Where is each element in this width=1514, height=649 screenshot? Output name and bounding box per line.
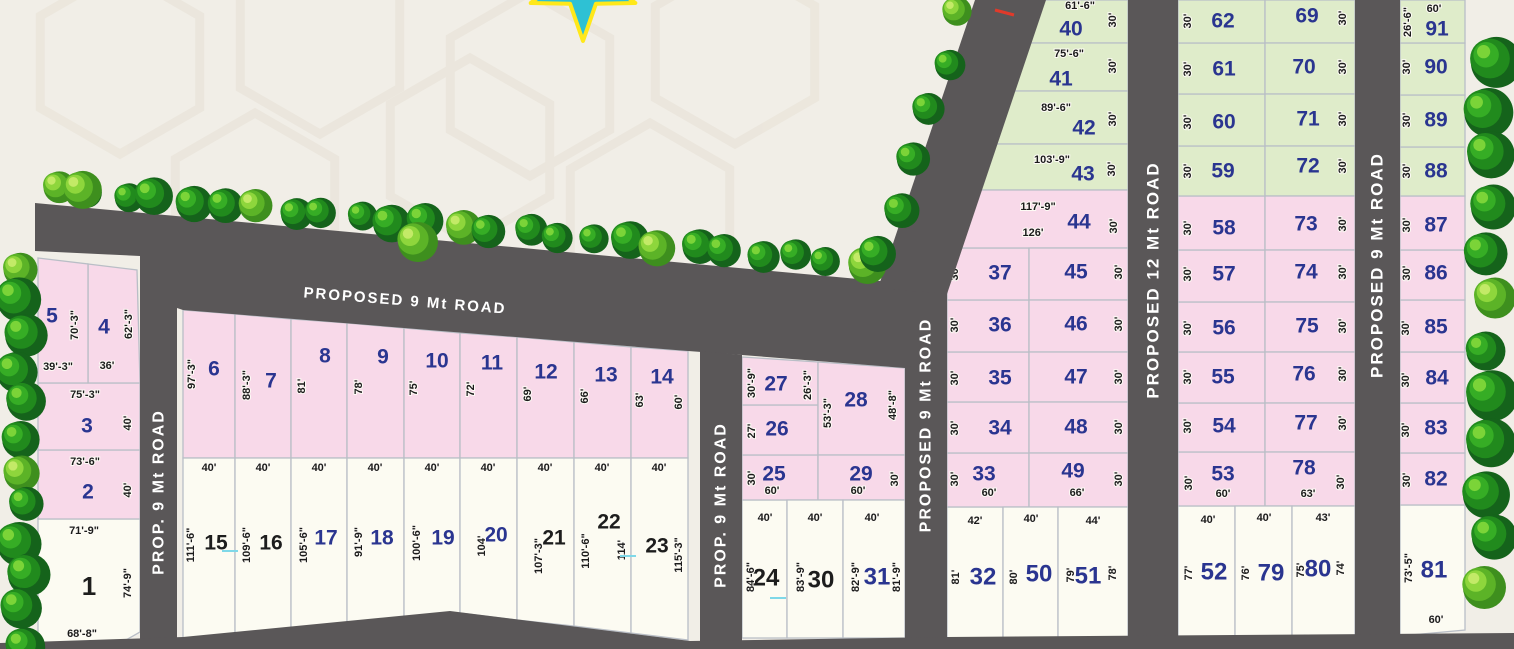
plot-25-number: 25 bbox=[762, 463, 786, 486]
plot-43-dimension: 30' bbox=[1106, 161, 1118, 176]
plot-76-number: 76 bbox=[1292, 363, 1315, 386]
plot-88-dimension: 30' bbox=[1401, 163, 1413, 178]
plot-41-dimension: 30' bbox=[1107, 58, 1119, 73]
plot-29-dimension: 60' bbox=[851, 485, 866, 497]
plot-73-dimension: 30' bbox=[1337, 216, 1349, 231]
plot-56-number: 56 bbox=[1212, 317, 1235, 340]
plot-89-dimension: 30' bbox=[1401, 112, 1413, 127]
plot-41-dimension: 75'-6" bbox=[1054, 48, 1084, 60]
plot-7-number: 7 bbox=[265, 370, 277, 393]
plot-85-number: 85 bbox=[1424, 316, 1448, 339]
plot-5: 570'-3"39'-3" bbox=[38, 258, 88, 383]
plot-27-dimension: 26'-3" bbox=[802, 370, 814, 400]
plot-70-number: 70 bbox=[1292, 56, 1315, 79]
plot-4: 462'-3"36' bbox=[88, 264, 140, 383]
plot-1: 171'-9"74'-9"68'-8" bbox=[38, 519, 140, 648]
plot-79-dimension: 40' bbox=[1257, 512, 1272, 524]
road-label-9mt-right: PROPOSED 9 Mt ROAD bbox=[1368, 152, 1387, 378]
plot-91-dimension: 60' bbox=[1427, 3, 1442, 15]
plot-49: 4966'30' bbox=[1029, 453, 1128, 507]
plot-49-dimension: 66' bbox=[1070, 487, 1085, 499]
plot-32-dimension: 42' bbox=[968, 515, 983, 527]
plot-25-dimension: 30' bbox=[746, 470, 758, 485]
plot-84: 8430' bbox=[1400, 352, 1465, 403]
plot-3-number: 3 bbox=[81, 415, 93, 438]
plot-52-dimension: 77' bbox=[1183, 565, 1195, 580]
plot-11: 1172' bbox=[460, 333, 517, 458]
plot-3-dimension: 75'-3" bbox=[70, 389, 100, 401]
plot-28-number: 28 bbox=[844, 389, 868, 412]
plot-53-dimension: 30' bbox=[1183, 475, 1195, 490]
plot-91: 9160'26'-6" bbox=[1400, 0, 1465, 43]
plot-79-number: 79 bbox=[1258, 560, 1285, 587]
plot-24: 2440'84'-6" bbox=[742, 500, 787, 638]
plot-44-dimension: 30' bbox=[1108, 218, 1120, 233]
plot-78-dimension: 30' bbox=[1335, 474, 1347, 489]
plot-74-dimension: 30' bbox=[1337, 264, 1349, 279]
plot-43-number: 43 bbox=[1071, 163, 1094, 186]
plot-36-number: 36 bbox=[988, 314, 1011, 337]
plot-31-dimension: 40' bbox=[865, 512, 880, 524]
plot-87-dimension: 30' bbox=[1401, 217, 1413, 232]
plot-91-dimension: 26'-6" bbox=[1402, 7, 1414, 37]
plot-50-dimension: 80' bbox=[1008, 569, 1020, 584]
plot-48-number: 48 bbox=[1064, 416, 1088, 439]
plot-45-dimension: 30' bbox=[1113, 264, 1125, 279]
plot-75-dimension: 30' bbox=[1337, 318, 1349, 333]
plot-34-number: 34 bbox=[988, 417, 1012, 440]
plot-35-number: 35 bbox=[988, 367, 1012, 390]
plot-15: 1540'111'-6" bbox=[183, 458, 235, 638]
plot-12-dimension: 69' bbox=[522, 386, 534, 401]
plot-47-dimension: 30' bbox=[1113, 369, 1125, 384]
plot-2-dimension: 40' bbox=[122, 482, 134, 497]
plot-19: 1940'100'-6" bbox=[404, 458, 460, 617]
plot-50: 5040'80' bbox=[1003, 507, 1058, 638]
plot-76-dimension: 30' bbox=[1337, 366, 1349, 381]
plot-83: 8330' bbox=[1400, 403, 1465, 453]
plot-6-number: 6 bbox=[208, 358, 220, 381]
plot-10-number: 10 bbox=[425, 350, 448, 373]
plot-22-number: 22 bbox=[597, 511, 620, 534]
plot-19-dimension: 40' bbox=[425, 462, 440, 474]
plot-5-dimension: 39'-3" bbox=[43, 361, 73, 373]
plot-14-dimension: 63' bbox=[634, 392, 646, 407]
plot-23-dimension: 114' bbox=[616, 539, 628, 560]
plot-50-number: 50 bbox=[1026, 561, 1053, 588]
plot-84-number: 84 bbox=[1425, 367, 1449, 390]
plot-90-number: 90 bbox=[1424, 56, 1447, 79]
plot-4-dimension: 36' bbox=[100, 360, 115, 372]
plot-41-number: 41 bbox=[1049, 68, 1073, 91]
plot-48: 4830' bbox=[1029, 402, 1128, 453]
plot-82-dimension: 30' bbox=[1401, 472, 1413, 487]
plot-91-number: 91 bbox=[1425, 18, 1449, 41]
plot-83-number: 83 bbox=[1424, 417, 1447, 440]
plot-82: 8230' bbox=[1400, 453, 1465, 505]
plot-58-number: 58 bbox=[1212, 217, 1236, 240]
plot-62-dimension: 30' bbox=[1182, 13, 1194, 28]
plot-34: 3430' bbox=[947, 402, 1029, 453]
plot-72: 7230' bbox=[1265, 146, 1355, 196]
plot-88: 8830' bbox=[1400, 147, 1465, 196]
plot-19-dimension: 100'-6" bbox=[411, 525, 423, 561]
plot-7: 788'-3" bbox=[235, 314, 291, 458]
plot-59-number: 59 bbox=[1211, 160, 1234, 183]
plot-36-dimension: 30' bbox=[949, 317, 961, 332]
plot-49-number: 49 bbox=[1061, 460, 1084, 483]
plot-13: 1366' bbox=[574, 342, 631, 458]
plot-47-number: 47 bbox=[1064, 366, 1087, 389]
plot-44: 44117'-9"126'30' bbox=[958, 190, 1128, 248]
plot-30-number: 30 bbox=[808, 567, 835, 594]
plot-34-dimension: 30' bbox=[949, 420, 961, 435]
plot-90: 9030' bbox=[1400, 43, 1465, 95]
plot-74: 7430' bbox=[1265, 250, 1355, 302]
plot-21-number: 21 bbox=[542, 527, 566, 550]
plot-37-number: 37 bbox=[988, 262, 1011, 285]
plot-45-number: 45 bbox=[1064, 261, 1088, 284]
plot-46-number: 46 bbox=[1064, 313, 1087, 336]
plot-51-number: 51 bbox=[1075, 563, 1102, 590]
plot-15-dimension: 111'-6" bbox=[185, 528, 197, 563]
plot-25: 2530'60' bbox=[742, 455, 818, 500]
plot-79: 7940'76' bbox=[1235, 506, 1292, 638]
plot-30: 3040'83'-9" bbox=[787, 500, 843, 638]
plot-80-dimension: 75' bbox=[1295, 562, 1307, 577]
plot-14-dimension: 60' bbox=[673, 394, 685, 409]
plot-60-dimension: 30' bbox=[1182, 114, 1194, 129]
plot-89-number: 89 bbox=[1424, 109, 1447, 132]
plot-45: 4530' bbox=[1029, 248, 1128, 300]
road-label-prop9-left: PROP. 9 Mt ROAD bbox=[151, 409, 168, 575]
plot-42-number: 42 bbox=[1072, 117, 1095, 140]
plot-80: 8043'75'74' bbox=[1292, 506, 1355, 638]
plot-78-number: 78 bbox=[1292, 457, 1316, 480]
plot-17-dimension: 105'-6" bbox=[298, 527, 310, 563]
plot-17: 1740'105'-6" bbox=[291, 458, 347, 628]
plot-18-dimension: 91'-9" bbox=[353, 527, 365, 557]
plot-27-number: 27 bbox=[764, 373, 787, 396]
road-label-prop9-mid: PROP. 9 Mt ROAD bbox=[713, 422, 730, 588]
plot-73-number: 73 bbox=[1294, 213, 1317, 236]
plot-6: 697'-3" bbox=[183, 310, 235, 458]
plot-53-dimension: 60' bbox=[1216, 488, 1231, 500]
plot-13-dimension: 66' bbox=[579, 388, 591, 403]
plot-27-dimension: 30'-9" bbox=[746, 368, 758, 398]
plot-29-dimension: 30' bbox=[889, 471, 901, 486]
plot-layout-map: 171'-9"74'-9"68'-8"273'-6"40'375'-3"40'4… bbox=[0, 0, 1514, 649]
plot-21-dimension: 40' bbox=[538, 462, 553, 474]
plot-54-dimension: 30' bbox=[1182, 418, 1194, 433]
plot-54: 5430' bbox=[1178, 403, 1265, 452]
plot-52: 5240'77' bbox=[1178, 506, 1235, 638]
plot-73: 7330' bbox=[1265, 196, 1355, 250]
plot-21: 2140'107'-3" bbox=[517, 458, 574, 626]
plot-29: 2960'30' bbox=[818, 455, 905, 500]
plot-57-dimension: 30' bbox=[1182, 266, 1194, 281]
plot-28-dimension: 48'-8" bbox=[887, 390, 899, 420]
plot-20-dimension: 104' bbox=[476, 535, 488, 556]
plot-17-dimension: 40' bbox=[312, 462, 327, 474]
plot-57-number: 57 bbox=[1212, 263, 1235, 286]
plot-32-number: 32 bbox=[970, 564, 997, 591]
plot-53-number: 53 bbox=[1211, 463, 1234, 486]
plot-3-dimension: 40' bbox=[122, 415, 134, 430]
plot-25-dimension: 60' bbox=[765, 485, 780, 497]
plot-2: 273'-6"40' bbox=[38, 450, 140, 519]
plot-31: 3140'82'-9"81'-9" bbox=[843, 500, 905, 638]
plot-33-dimension: 30' bbox=[949, 471, 961, 486]
plot-54-number: 54 bbox=[1212, 415, 1236, 438]
plot-40-dimension: 61'-6" bbox=[1065, 0, 1095, 12]
plot-59: 5930' bbox=[1178, 146, 1265, 196]
plot-23-number: 23 bbox=[645, 535, 668, 558]
plot-77-dimension: 30' bbox=[1337, 415, 1349, 430]
plot-56-dimension: 30' bbox=[1182, 320, 1194, 335]
plot-49-dimension: 30' bbox=[1113, 471, 1125, 486]
plot-32-dimension: 81' bbox=[950, 569, 962, 584]
plot-53: 5330'60' bbox=[1178, 452, 1265, 506]
plot-15-dimension: 40' bbox=[202, 462, 217, 474]
plot-52-number: 52 bbox=[1201, 559, 1228, 586]
plot-75: 7530' bbox=[1265, 302, 1355, 352]
plot-52-dimension: 40' bbox=[1201, 514, 1216, 526]
plot-87: 8730' bbox=[1400, 196, 1465, 250]
plot-1-dimension: 71'-9" bbox=[69, 525, 99, 537]
plot-8-number: 8 bbox=[319, 345, 331, 368]
plot-3: 375'-3"40' bbox=[38, 383, 140, 450]
plot-72-number: 72 bbox=[1296, 155, 1319, 178]
road-label-12mt: PROPOSED 12 Mt ROAD bbox=[1144, 161, 1163, 398]
plot-80-dimension: 74' bbox=[1335, 560, 1347, 575]
plot-1-number: 1 bbox=[82, 571, 96, 601]
plot-1-dimension: 74'-9" bbox=[122, 568, 134, 598]
plot-16-number: 16 bbox=[259, 532, 282, 555]
plot-26-number: 26 bbox=[765, 418, 788, 441]
plot-77: 7730' bbox=[1265, 403, 1355, 452]
plot-81-number: 81 bbox=[1421, 557, 1448, 584]
plot-69-number: 69 bbox=[1295, 5, 1318, 28]
plot-31-number: 31 bbox=[864, 564, 891, 591]
plot-58: 5830' bbox=[1178, 196, 1265, 250]
plot-71: 7130' bbox=[1265, 94, 1355, 146]
plot-14: 1463'60' bbox=[631, 347, 688, 458]
plot-71-number: 71 bbox=[1296, 108, 1320, 131]
plot-30-dimension: 40' bbox=[808, 512, 823, 524]
plot-20-dimension: 40' bbox=[481, 462, 496, 474]
plot-27: 2730'-9"26'-3" bbox=[742, 357, 818, 405]
plot-31-dimension: 81'-9" bbox=[891, 562, 903, 592]
plot-59-dimension: 30' bbox=[1182, 163, 1194, 178]
plot-62: 6230' bbox=[1178, 0, 1265, 43]
plot-5-number: 5 bbox=[46, 305, 58, 328]
plot-35: 3530' bbox=[947, 352, 1029, 402]
plot-71-dimension: 30' bbox=[1337, 111, 1349, 126]
plot-4-number: 4 bbox=[98, 316, 110, 339]
plot-51: 5144'79'78' bbox=[1058, 507, 1128, 638]
plot-10: 1075' bbox=[404, 328, 460, 458]
plot-81-dimension: 73'-5" bbox=[1403, 553, 1415, 583]
plot-60: 6030' bbox=[1178, 94, 1265, 146]
plot-8: 881' bbox=[291, 319, 347, 458]
plot-44-dimension: 126' bbox=[1023, 227, 1044, 239]
plot-51-dimension: 78' bbox=[1107, 565, 1119, 580]
plot-87-number: 87 bbox=[1424, 214, 1447, 237]
plot-55: 5530' bbox=[1178, 352, 1265, 403]
plot-6-dimension: 97'-3" bbox=[186, 359, 198, 389]
plot-29-number: 29 bbox=[849, 463, 872, 486]
plot-80-dimension: 43' bbox=[1316, 512, 1331, 524]
plot-9-number: 9 bbox=[377, 346, 389, 369]
plot-26: 2627' bbox=[742, 405, 818, 455]
plot-19-number: 19 bbox=[431, 527, 454, 550]
plot-20: 2040'104' bbox=[460, 458, 517, 620]
plot-44-number: 44 bbox=[1067, 211, 1091, 234]
plot-55-number: 55 bbox=[1211, 366, 1235, 389]
plot-72-dimension: 30' bbox=[1337, 158, 1349, 173]
plot-86-dimension: 30' bbox=[1401, 265, 1413, 280]
plot-12-number: 12 bbox=[534, 361, 557, 384]
plot-24-dimension: 40' bbox=[758, 512, 773, 524]
plot-42: 4289'-6"30' bbox=[994, 91, 1128, 144]
plot-13-number: 13 bbox=[594, 364, 617, 387]
plot-61-dimension: 30' bbox=[1182, 61, 1194, 76]
plot-56: 5630' bbox=[1178, 302, 1265, 352]
plot-18-dimension: 40' bbox=[368, 462, 383, 474]
plot-40-number: 40 bbox=[1059, 18, 1082, 41]
plot-58-dimension: 30' bbox=[1182, 220, 1194, 235]
plot-46: 4630' bbox=[1029, 300, 1128, 352]
plot-85-dimension: 30' bbox=[1400, 320, 1412, 335]
plot-43: 43103'-9"30' bbox=[978, 144, 1128, 190]
plot-16: 1640'109'-6" bbox=[235, 458, 291, 633]
plot-22-dimension: 110'-6" bbox=[580, 533, 592, 568]
plot-62-number: 62 bbox=[1211, 10, 1234, 33]
plot-80-number: 80 bbox=[1305, 556, 1332, 583]
plot-9: 978' bbox=[347, 323, 404, 458]
plot-84-dimension: 30' bbox=[1400, 372, 1412, 387]
plot-74-number: 74 bbox=[1294, 261, 1318, 284]
plot-69-dimension: 30' bbox=[1337, 10, 1349, 25]
plot-85: 8530' bbox=[1400, 300, 1465, 352]
plot-70: 7030' bbox=[1265, 43, 1355, 94]
plot-10-dimension: 75' bbox=[408, 380, 420, 395]
plot-81: 8173'-5"60' bbox=[1400, 505, 1465, 636]
plot-48-dimension: 30' bbox=[1113, 419, 1125, 434]
plot-22-dimension: 40' bbox=[595, 462, 610, 474]
plot-5-dimension: 70'-3" bbox=[69, 310, 81, 340]
plot-9-dimension: 78' bbox=[353, 379, 365, 394]
plot-4-dimension: 62'-3" bbox=[123, 309, 135, 339]
plot-75-number: 75 bbox=[1295, 315, 1319, 338]
plot-2-dimension: 73'-6" bbox=[70, 456, 100, 468]
plot-30-dimension: 83'-9" bbox=[795, 562, 807, 592]
plot-31-dimension: 82'-9" bbox=[850, 562, 862, 592]
plot-23-dimension: 115'-3" bbox=[673, 537, 685, 572]
plot-69: 6930' bbox=[1265, 0, 1355, 43]
plot-46-dimension: 30' bbox=[1113, 316, 1125, 331]
plot-8-dimension: 81' bbox=[296, 378, 308, 393]
plot-77-number: 77 bbox=[1294, 412, 1317, 435]
plot-82-number: 82 bbox=[1424, 468, 1447, 491]
plot-36: 3630' bbox=[947, 300, 1029, 352]
plot-50-dimension: 40' bbox=[1024, 513, 1039, 525]
plot-81-dimension: 60' bbox=[1429, 614, 1444, 626]
plot-86: 8630' bbox=[1400, 250, 1465, 300]
plot-55-dimension: 30' bbox=[1182, 369, 1194, 384]
plot-28: 2853'-3"48'-8" bbox=[818, 362, 905, 455]
plot-47: 4730' bbox=[1029, 352, 1128, 402]
plot-14-number: 14 bbox=[650, 366, 674, 389]
plot-79-dimension: 76' bbox=[1240, 565, 1252, 580]
plot-33-dimension: 60' bbox=[982, 487, 997, 499]
plot-57: 5730' bbox=[1178, 250, 1265, 302]
plot-11-number: 11 bbox=[481, 352, 504, 375]
plot-86-number: 86 bbox=[1424, 262, 1447, 285]
plot-35-dimension: 30' bbox=[949, 370, 961, 385]
plot-90-dimension: 30' bbox=[1401, 59, 1413, 74]
plot-2-number: 2 bbox=[82, 481, 94, 504]
plot-26-dimension: 27' bbox=[746, 423, 758, 438]
plot-51-dimension: 44' bbox=[1086, 515, 1101, 527]
plot-18: 1840'91'-9" bbox=[347, 458, 404, 622]
plot-61: 6130' bbox=[1178, 43, 1265, 94]
plot-89: 8930' bbox=[1400, 95, 1465, 147]
plot-1-dimension: 68'-8" bbox=[67, 628, 97, 640]
plot-61-number: 61 bbox=[1212, 58, 1236, 81]
road-label-9mt-center: PROPOSED 9 Mt ROAD bbox=[918, 318, 935, 533]
plot-78: 7863'30' bbox=[1265, 452, 1355, 506]
plot-78-dimension: 63' bbox=[1301, 488, 1316, 500]
plot-88-number: 88 bbox=[1424, 160, 1448, 183]
site-plan-canvas: 171'-9"74'-9"68'-8"273'-6"40'375'-3"40'4… bbox=[0, 0, 1514, 649]
plot-24-dimension: 84'-6" bbox=[745, 562, 757, 592]
plot-11-dimension: 72' bbox=[465, 381, 477, 396]
plot-41: 4175'-6"30' bbox=[1012, 43, 1128, 91]
plot-21-dimension: 107'-3" bbox=[533, 538, 545, 574]
plot-44-dimension: 117'-9" bbox=[1020, 201, 1055, 213]
plot-33: 3330'60' bbox=[947, 453, 1029, 507]
plot-32: 3242'81' bbox=[947, 507, 1003, 638]
plot-44-shape bbox=[958, 190, 1128, 248]
plot-12: 1269' bbox=[517, 337, 574, 458]
plot-18-number: 18 bbox=[370, 527, 394, 550]
plot-83-dimension: 30' bbox=[1400, 422, 1412, 437]
plot-51-dimension: 79' bbox=[1065, 567, 1077, 582]
plot-40-dimension: 30' bbox=[1107, 12, 1119, 27]
plot-70-dimension: 30' bbox=[1337, 59, 1349, 74]
plot-17-number: 17 bbox=[314, 527, 337, 550]
plot-16-dimension: 40' bbox=[256, 462, 271, 474]
plot-7-dimension: 88'-3" bbox=[241, 370, 253, 400]
plot-60-number: 60 bbox=[1212, 111, 1235, 134]
plot-43-dimension: 103'-9" bbox=[1034, 154, 1070, 166]
plot-76: 7630' bbox=[1265, 352, 1355, 403]
plot-28-dimension: 53'-3" bbox=[822, 398, 834, 428]
plot-42-dimension: 89'-6" bbox=[1041, 102, 1071, 114]
plot-16-dimension: 109'-6" bbox=[241, 527, 253, 563]
plot-33-number: 33 bbox=[972, 463, 995, 486]
plot-42-dimension: 30' bbox=[1107, 111, 1119, 126]
plot-23-dimension: 40' bbox=[652, 462, 667, 474]
